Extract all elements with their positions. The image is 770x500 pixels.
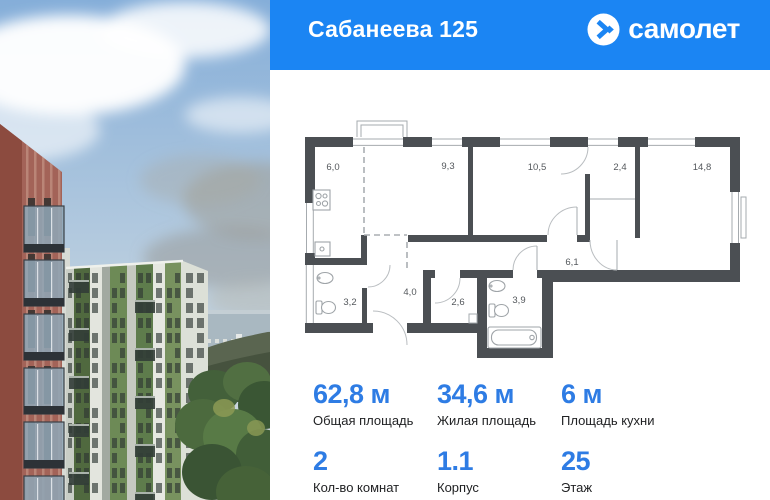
samolet-logo-text: самолет (628, 13, 740, 45)
bathroom2-sink-icon (489, 281, 505, 292)
stat-floor: 25 Этаж (561, 447, 592, 495)
toilet-icon (316, 301, 336, 314)
stats-row-areas: 62,8 м Общая площадь 34,6 м Жилая площад… (313, 380, 654, 428)
room-area-bedroom1: 10,5 (528, 162, 547, 173)
room-area-bathroom: 3,2 (343, 297, 356, 308)
room-area-closet: 2,4 (613, 162, 626, 173)
room-area-living: 9,3 (441, 161, 454, 172)
stat-value: 2 (313, 447, 437, 475)
floor-plan: 6,0 9,3 10,5 2,4 14,8 6,1 3,2 4,0 2,6 3,… (295, 112, 755, 362)
stat-label: Кол-во комнат (313, 480, 437, 495)
info-panel: Сабанеева 125 самолет (270, 0, 770, 500)
room-area-bedroom2: 14,8 (693, 162, 712, 173)
room-area-hall: 4,0 (403, 287, 416, 298)
room-area-bathroom2: 3,9 (512, 295, 525, 306)
stat-building: 1.1 Корпус (437, 447, 561, 495)
kitchen-sink-icon (315, 242, 330, 256)
samolet-logo-icon (587, 13, 620, 46)
toilet2-icon (489, 304, 509, 317)
stat-living-area: 34,6 м Жилая площадь (437, 380, 561, 428)
complex-title: Сабанеева 125 (308, 16, 478, 43)
stat-value: 62,8 м (313, 380, 437, 408)
stats-row-details: 2 Кол-во комнат 1.1 Корпус 25 Этаж (313, 447, 592, 495)
red-building (0, 124, 64, 500)
stat-value: 25 (561, 447, 592, 475)
balcony-outline (357, 121, 407, 137)
stat-kitchen-area: 6 м Площадь кухни (561, 380, 654, 428)
stat-label: Общая площадь (313, 413, 437, 428)
stat-value: 6 м (561, 380, 654, 408)
bathtub-icon (488, 327, 541, 348)
samolet-logo: самолет (587, 13, 740, 46)
bathroom-sink-icon (317, 273, 333, 284)
room-area-corridor: 6,1 (565, 257, 578, 268)
stat-total-area: 62,8 м Общая площадь (313, 380, 437, 428)
stat-label: Этаж (561, 480, 592, 495)
stat-label: Жилая площадь (437, 413, 561, 428)
room-area-kitchen: 6,0 (326, 162, 339, 173)
stat-label: Корпус (437, 480, 561, 495)
room-area-storage: 2,6 (451, 297, 464, 308)
stat-rooms-count: 2 Кол-во комнат (313, 447, 437, 495)
stove-icon (313, 190, 330, 210)
building-photo (0, 0, 270, 500)
listing-card[interactable]: Сабанеева 125 самолет (0, 0, 770, 500)
stat-value: 1.1 (437, 447, 561, 475)
stat-label: Площадь кухни (561, 413, 654, 428)
stat-value: 34,6 м (437, 380, 561, 408)
header: Сабанеева 125 самолет (270, 0, 770, 70)
